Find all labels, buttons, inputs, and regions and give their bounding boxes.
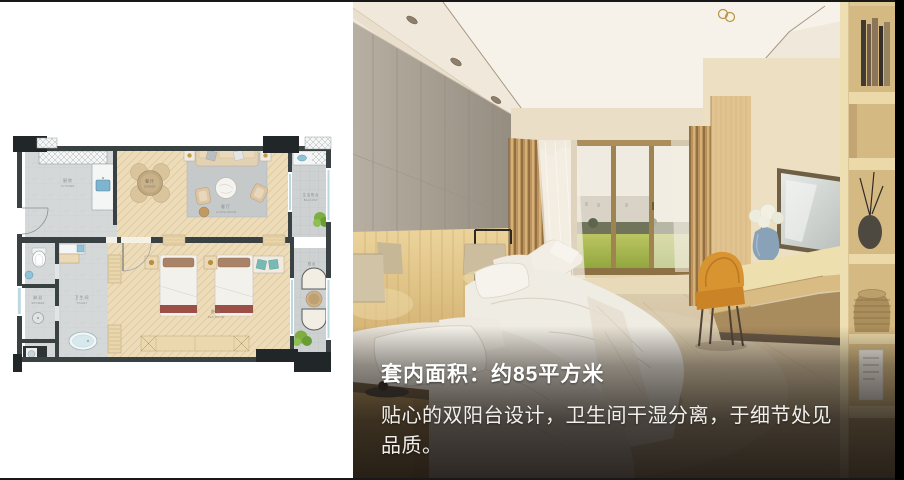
books xyxy=(861,20,866,86)
caption-body-line-2: 品质。 xyxy=(381,431,881,461)
label-toilet-zh: 卫生间 xyxy=(75,294,90,300)
label-shower-zh: 淋浴 xyxy=(33,294,43,300)
label-shower-en: SHOWER xyxy=(31,302,44,305)
slide: 厨房 KITCHEN 餐厅 DINNER 客厅 LIVING ROOM 卧室 B… xyxy=(0,0,904,480)
floor-plan-svg: 厨房 KITCHEN 餐厅 DINNER 客厅 LIVING ROOM 卧室 B… xyxy=(13,136,341,372)
dark-vase xyxy=(858,215,882,249)
label-balcony-bottom-zh: 阳台 xyxy=(308,261,316,266)
label-toilet-en: TOILET xyxy=(77,302,88,305)
label-bedroom-en: BED ROOM xyxy=(208,316,224,319)
label-kitchen-zh: 厨房 xyxy=(63,177,73,183)
label-balcony-top-zh: 生活阳台 xyxy=(303,192,320,197)
caption-title: 套内面积：约85平方米 xyxy=(381,358,881,388)
label-dining-en: DINNER xyxy=(144,186,156,189)
slide-frame-right xyxy=(895,0,904,480)
room-photo: 套内面积：约85平方米 贴心的双阳台设计，卫生间干湿分离，于细节处见 品质。 xyxy=(353,2,895,478)
caption-body: 贴心的双阳台设计，卫生间干湿分离，于细节处见 品质。 xyxy=(381,401,881,461)
label-bedroom-zh: 卧室 xyxy=(211,308,221,314)
label-dining-zh: 餐厅 xyxy=(145,178,155,184)
label-living-zh: 客厅 xyxy=(221,203,231,209)
caption-body-line-1: 贴心的双阳台设计，卫生间干湿分离，于细节处见 xyxy=(381,401,881,431)
label-kitchen-en: KITCHEN xyxy=(61,185,74,188)
floor-plan: 厨房 KITCHEN 餐厅 DINNER 客厅 LIVING ROOM 卧室 B… xyxy=(13,136,341,372)
label-balcony-top-en: BALCONY xyxy=(304,199,318,202)
photo-caption: 套内面积：约85平方米 贴心的双阳台设计，卫生间干湿分离，于细节处见 品质。 xyxy=(381,358,881,461)
label-living-en: LIVING ROOM xyxy=(216,211,236,214)
slide-frame-top xyxy=(0,0,904,2)
